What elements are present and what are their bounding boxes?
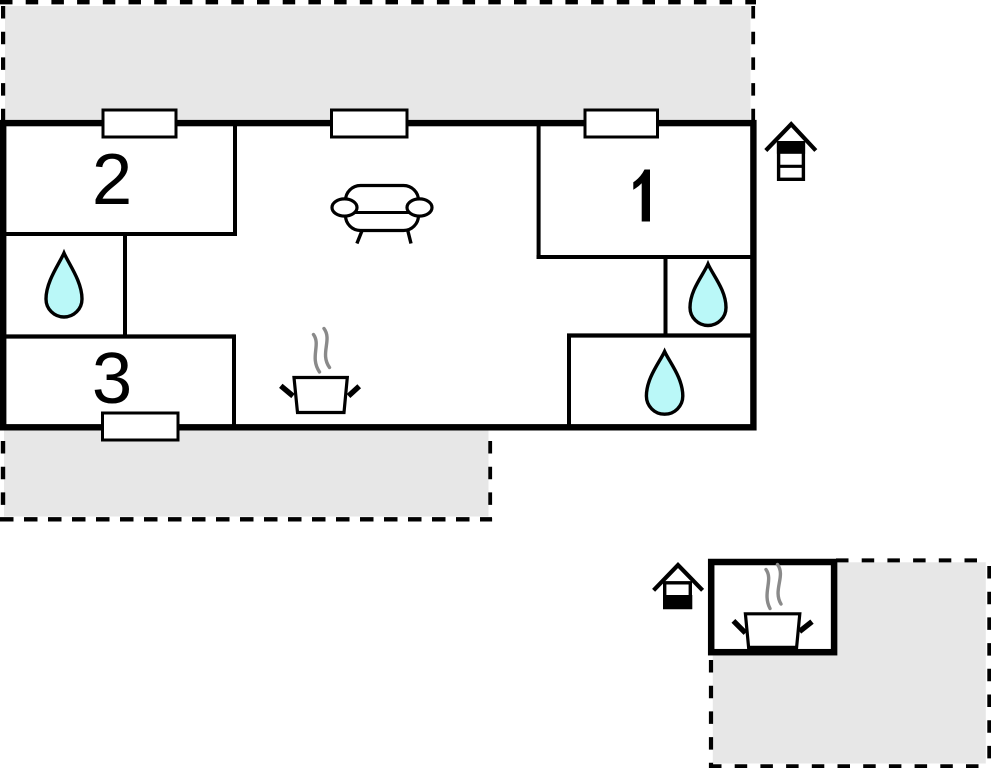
svg-text:3: 3 [92, 338, 132, 419]
svg-text:2: 2 [92, 139, 132, 220]
